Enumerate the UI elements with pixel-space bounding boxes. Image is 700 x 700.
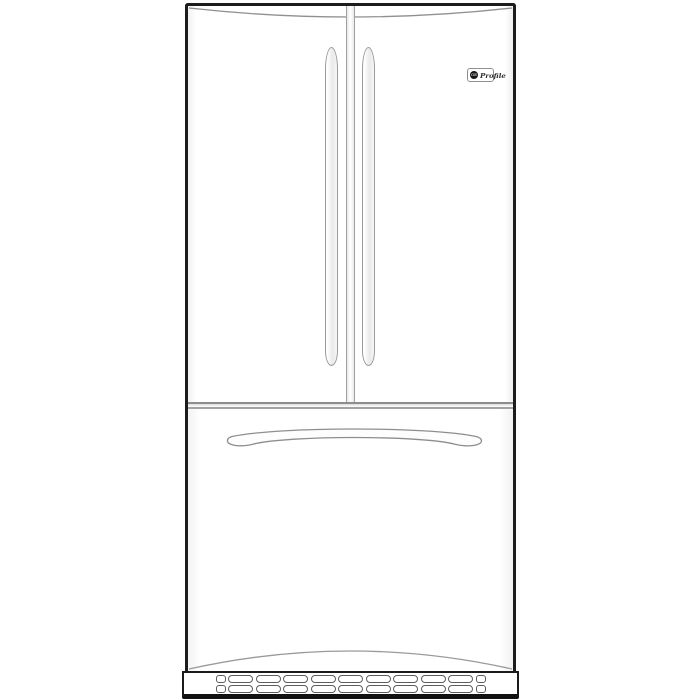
freezer-drawer-handle [188,409,513,459]
vent-slot [448,685,473,693]
grille-row [216,685,486,693]
vent-slot [366,685,391,693]
vent-slot-small [216,685,226,693]
right-door-handle [362,47,375,366]
brand-badge-label: Profile [480,71,506,79]
vent-slot [421,675,446,683]
vent-slot [228,685,253,693]
french-doors-section: GE Profile [188,6,513,402]
refrigerator-body: GE Profile [185,3,516,671]
vent-slot [393,685,418,693]
drawer-bottom-edge-curve [188,629,513,671]
vent-slot [338,685,363,693]
vent-slot-small [476,675,486,683]
freezer-drawer [188,409,513,671]
vent-slot [228,675,253,683]
vent-slot [283,675,308,683]
vent-slot [421,685,446,693]
vent-slot [283,685,308,693]
vent-slot [366,675,391,683]
vent-slot [256,675,281,683]
center-door-divider [346,6,355,402]
vent-slot [311,685,336,693]
kickplate-vent-grille [182,671,519,699]
ge-monogram-icon: GE [470,71,478,79]
vent-slot [338,675,363,683]
vent-slot-small [476,685,486,693]
brand-badge: GE Profile [467,68,494,82]
vent-slot [448,675,473,683]
left-door-handle [325,47,338,366]
vent-slot-small [216,675,226,683]
grille-row [216,675,486,683]
vent-slot [393,675,418,683]
product-image-canvas: GE Profile [0,0,700,700]
vent-slot [256,685,281,693]
vent-slot [311,675,336,683]
door-drawer-seam [188,402,513,409]
